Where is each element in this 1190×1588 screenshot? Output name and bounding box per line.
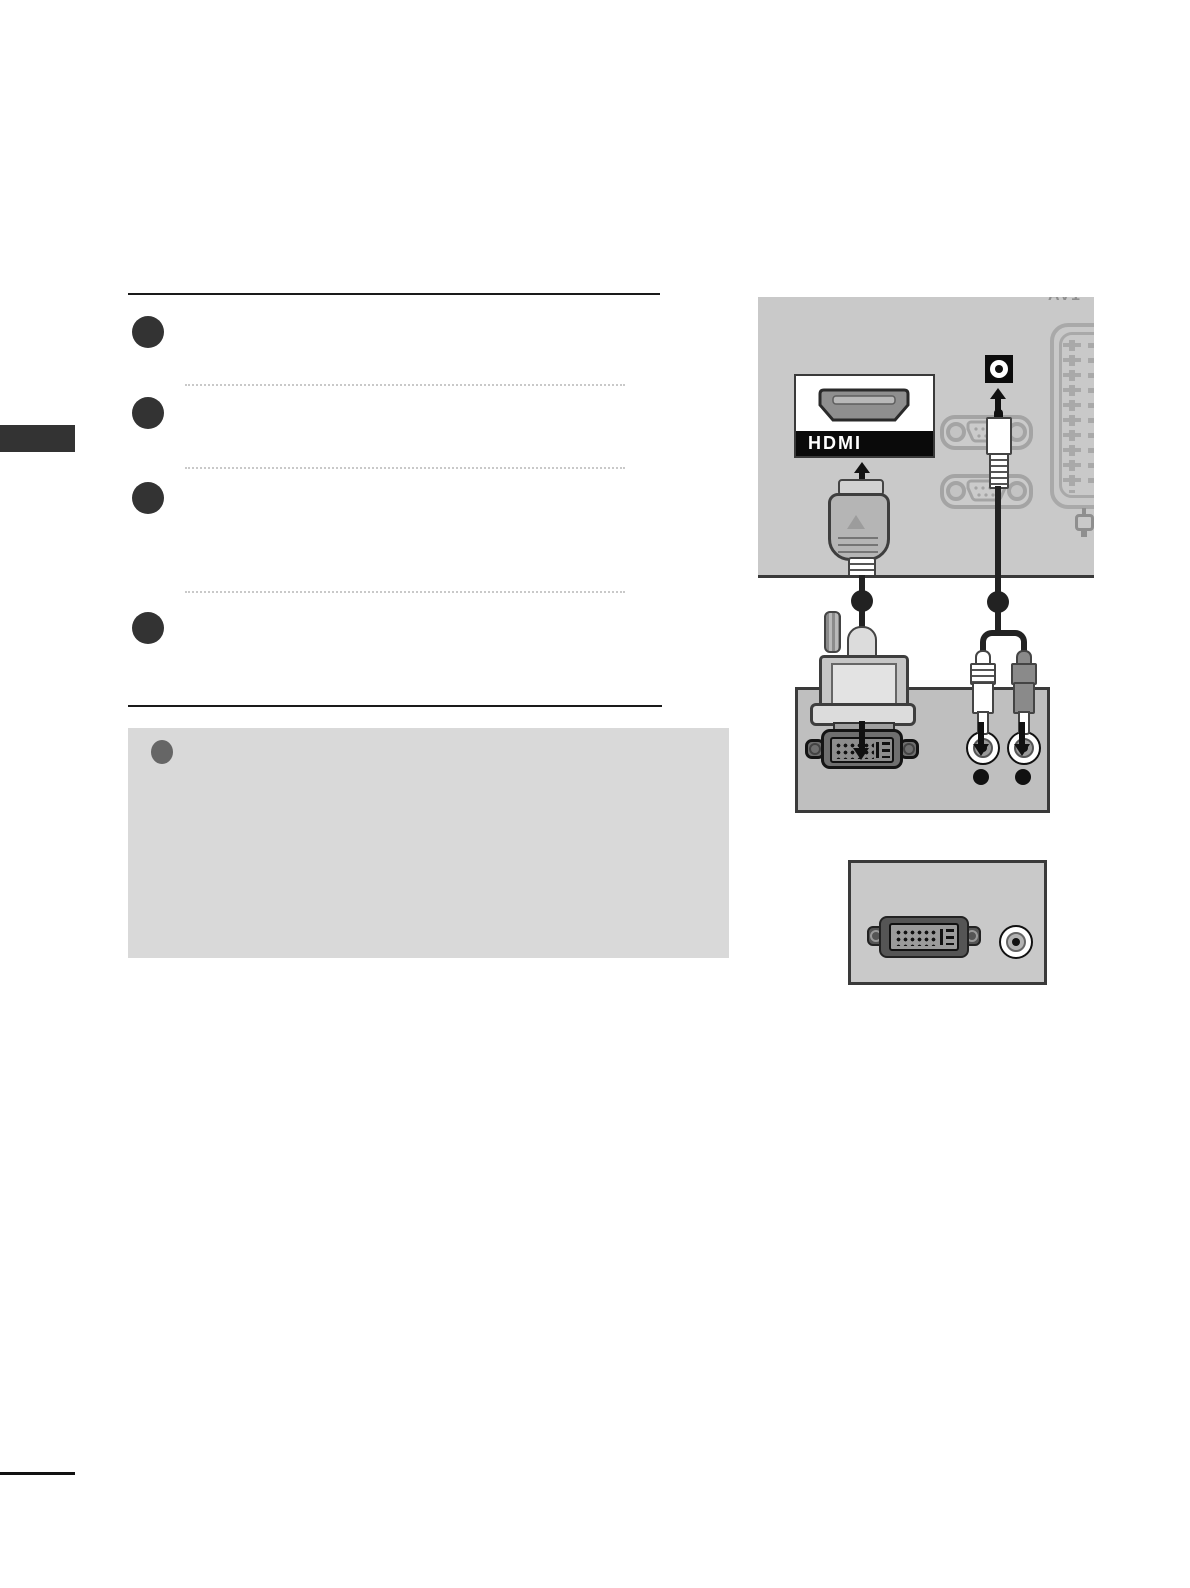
hdmi-plug-ridges (838, 537, 878, 554)
manual-page: AV1 (0, 0, 1190, 1588)
step-marker-1 (132, 316, 164, 348)
audio-in-port (985, 355, 1013, 383)
arrow-down-icon-audio-right (1014, 744, 1030, 756)
cable-marker-dot-audio (987, 591, 1009, 613)
audio-plug-body (986, 417, 1012, 455)
antenna-connector-stem (1081, 528, 1087, 537)
arrow-down-stem-dvi (859, 721, 865, 748)
bottom-rule (128, 705, 662, 707)
dvi-port-analog-pins (882, 742, 890, 758)
dvi-output-inner (889, 923, 959, 951)
hdmi-logo-text: HDMI (808, 433, 862, 453)
dvi-thumbscrew (824, 611, 841, 653)
arrow-down-icon-dvi (853, 748, 869, 760)
arrow-down-icon-audio-left (973, 744, 989, 756)
step-marker-2 (132, 397, 164, 429)
av1-label: AV1 (1048, 297, 1081, 305)
page-number-rule (0, 1472, 75, 1475)
step-marker-3 (132, 482, 164, 514)
step-divider-2 (185, 467, 625, 469)
audio-in-pin (995, 365, 1003, 373)
arrow-down-stem-audio-left (978, 722, 984, 745)
step-marker-4 (132, 612, 164, 644)
sidebar-tab (0, 425, 75, 452)
hdmi-port: HDMI (794, 374, 935, 458)
hdmi-socket-icon (816, 387, 912, 427)
dvi-port-separator (876, 742, 879, 758)
hdmi-plug-marker (847, 515, 865, 529)
dsub-port-2 (938, 467, 1035, 515)
audio-plug-ribs (989, 453, 1009, 489)
port-label-dot-left (973, 769, 989, 785)
rca-plug-red-body (1013, 682, 1035, 714)
dvi-output-analog-pins (946, 929, 954, 945)
audio-jack-icon (999, 925, 1033, 959)
note-box (128, 728, 729, 958)
tv-rear-panel: AV1 (758, 297, 1094, 578)
arrow-down-stem-audio-right (1019, 722, 1025, 745)
dvi-output-icon (879, 916, 969, 958)
note-marker-icon (151, 740, 173, 764)
dvi-output-pins (894, 928, 938, 946)
top-rule (128, 293, 660, 295)
port-label-dot-right (1015, 769, 1031, 785)
step-divider-1 (185, 384, 625, 386)
dvi-audio-example-box (848, 860, 1047, 985)
rca-plug-white-body (972, 682, 994, 714)
scart-pins-v (1069, 340, 1075, 493)
hdmi-logo: HDMI (796, 431, 933, 456)
cable-marker-dot-hdmi (851, 590, 873, 612)
dvi-output-separator (940, 929, 943, 945)
scart-pins-right (1088, 343, 1094, 493)
step-divider-3 (185, 591, 625, 593)
